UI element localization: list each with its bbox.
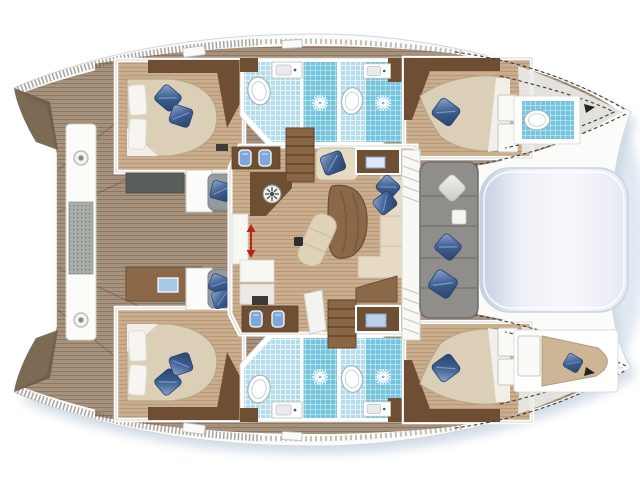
saloon xyxy=(230,128,416,348)
cockpit xyxy=(402,150,478,340)
floor-plan-canvas xyxy=(0,0,640,480)
winch-icon xyxy=(74,313,88,327)
cooktop xyxy=(252,296,268,305)
counter xyxy=(240,260,274,282)
vanity-stool xyxy=(239,150,251,166)
fold-table xyxy=(452,210,466,224)
desk-pad xyxy=(366,314,386,327)
counter xyxy=(232,214,248,264)
companionway-steps-port xyxy=(286,128,314,182)
vent-fan-icon xyxy=(263,185,281,203)
companionway-steps-starboard xyxy=(328,300,356,348)
trampoline-pad xyxy=(480,168,628,312)
mast-foot xyxy=(294,237,303,246)
toilet-icon xyxy=(524,110,550,131)
vanity-stool xyxy=(250,311,262,327)
helm-seat-mesh xyxy=(69,202,93,274)
vanity-stool xyxy=(272,311,284,327)
panel xyxy=(518,336,540,376)
crossbeam-bench xyxy=(66,124,96,340)
galley-module xyxy=(126,173,184,193)
vanity-stool xyxy=(259,150,271,166)
winch-icon xyxy=(74,151,88,165)
hatch xyxy=(282,39,302,48)
bow-head xyxy=(514,96,580,144)
vent xyxy=(216,144,228,151)
forepeak-berth xyxy=(514,330,618,392)
desk-pad xyxy=(158,278,178,292)
catamaran-floor-plan xyxy=(0,0,640,480)
hatch xyxy=(282,431,302,440)
desk-pad xyxy=(366,157,385,168)
